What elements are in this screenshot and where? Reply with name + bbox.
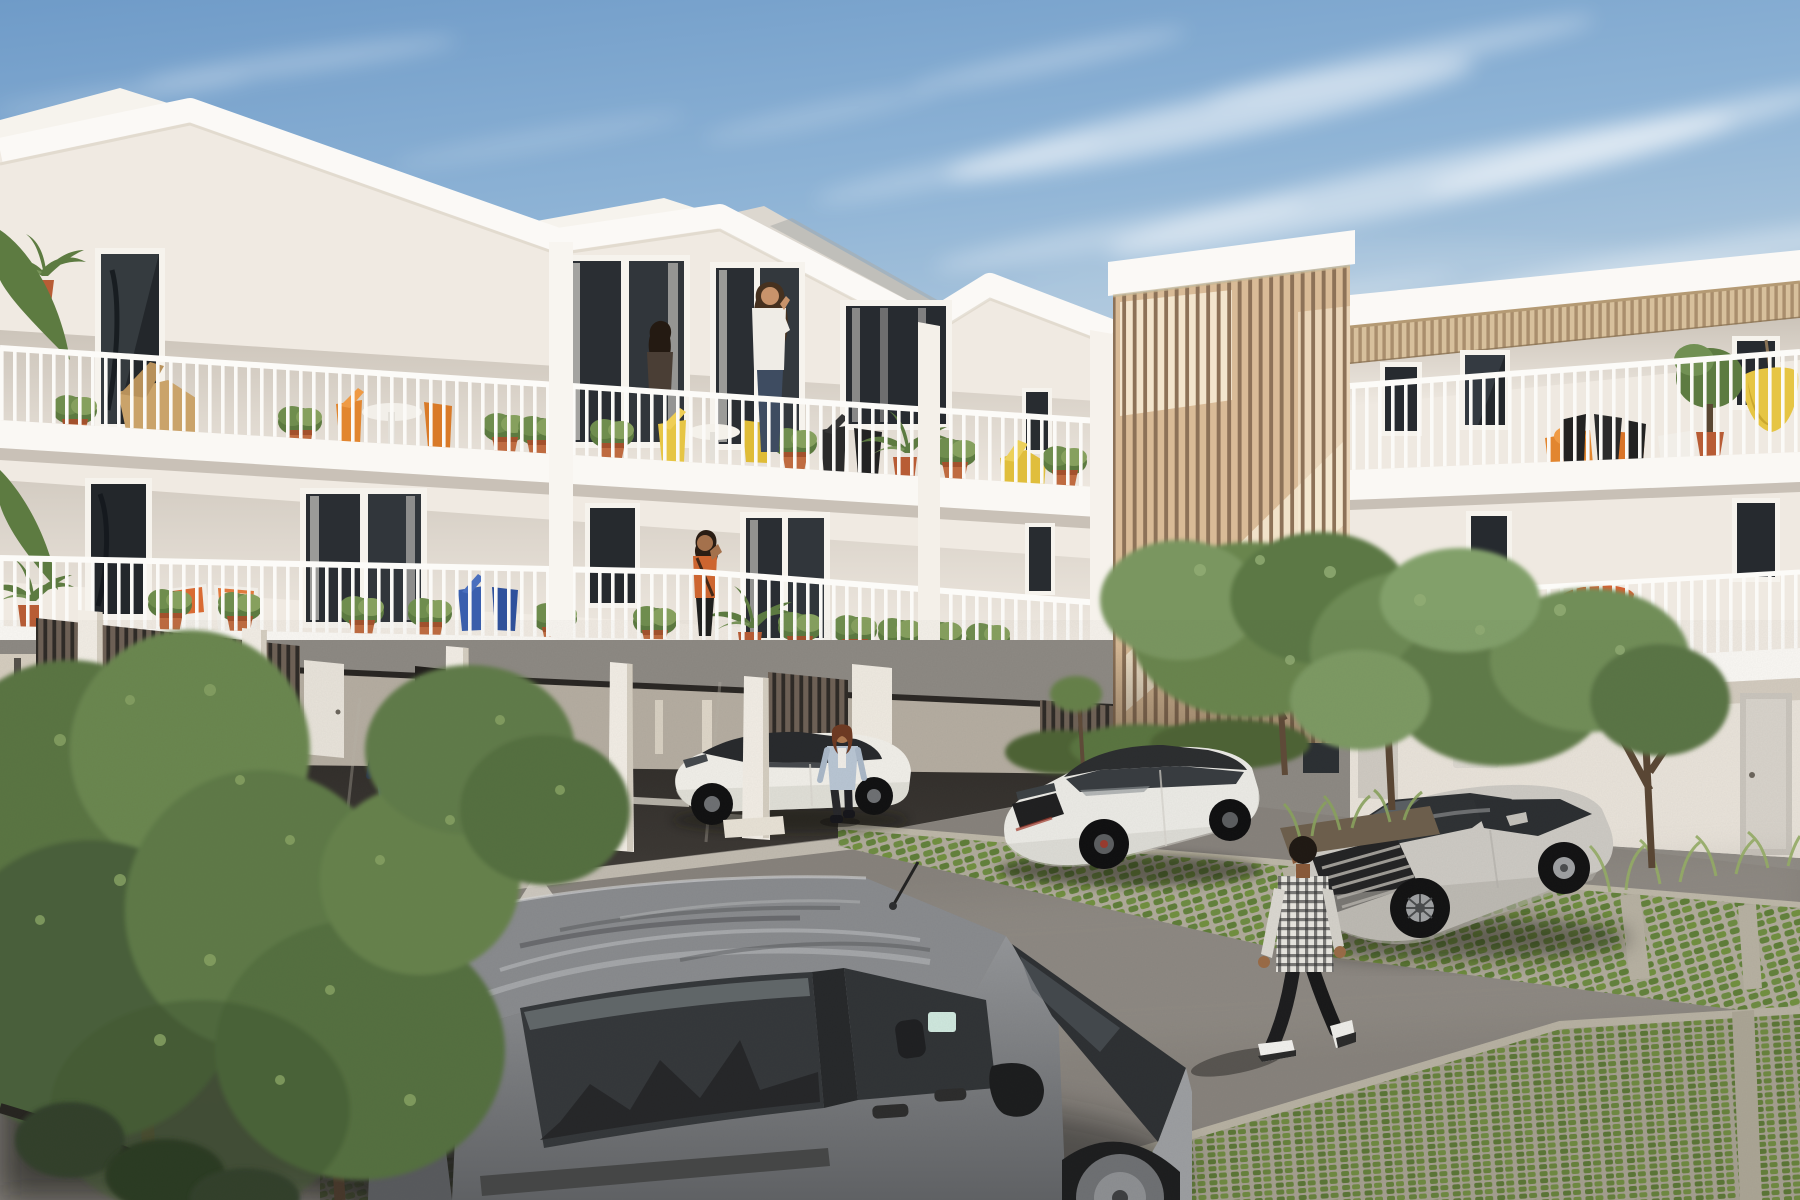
woman-at-door bbox=[647, 321, 673, 392]
rendered-scene bbox=[0, 0, 1800, 1200]
window bbox=[1025, 523, 1055, 595]
architectural-rendering bbox=[0, 0, 1800, 1200]
facade-pier bbox=[549, 242, 573, 648]
asphalt-grain bbox=[0, 620, 1800, 1200]
